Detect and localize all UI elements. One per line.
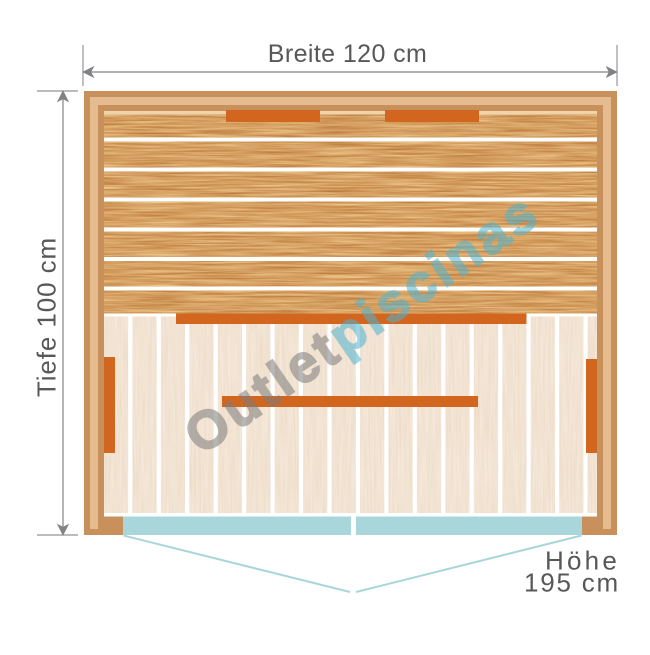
svg-text:195 cm: 195 cm [524, 568, 620, 598]
svg-text:Tiefe 100 cm: Tiefe 100 cm [32, 237, 62, 397]
svg-text:Breite 120 cm: Breite 120 cm [268, 40, 427, 68]
